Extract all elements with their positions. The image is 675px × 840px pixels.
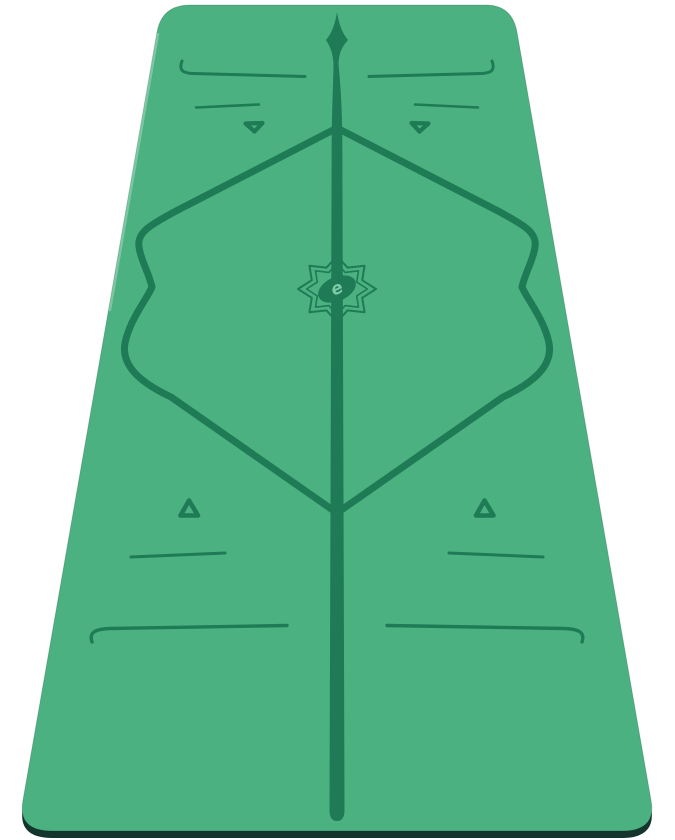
yoga-mat-illustration: e [0,0,675,840]
product-image: e [0,0,675,840]
